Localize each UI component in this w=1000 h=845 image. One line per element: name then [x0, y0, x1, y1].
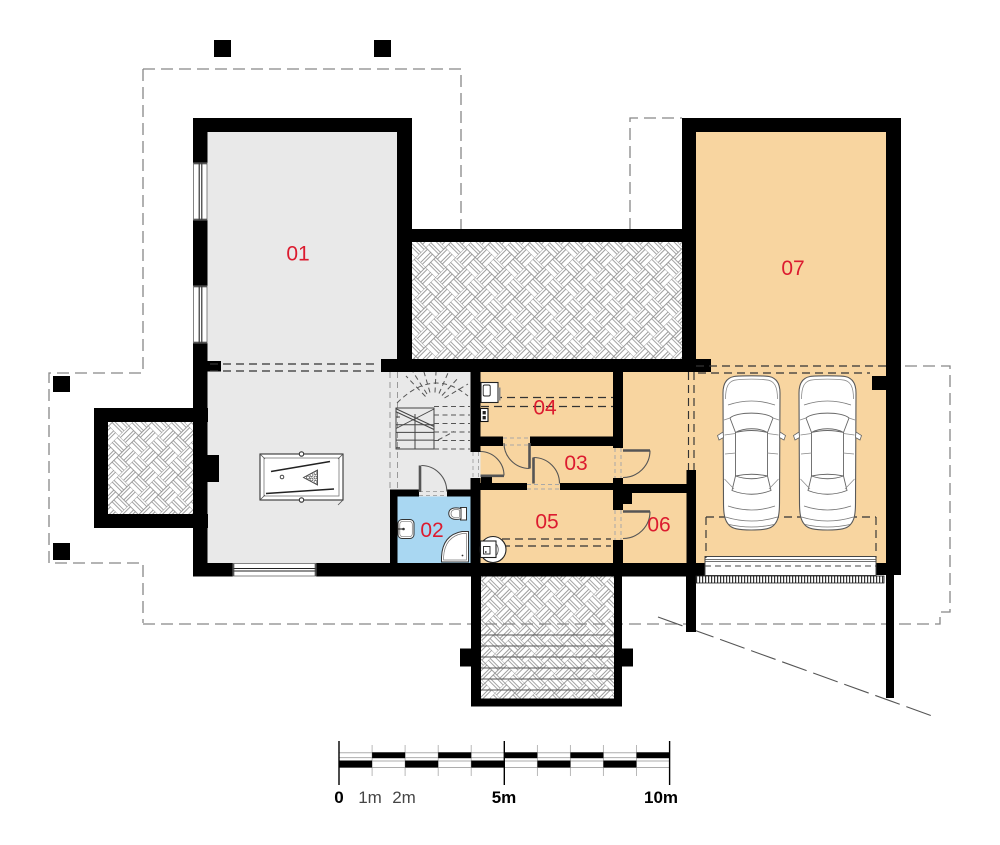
svg-text:5m: 5m [492, 788, 517, 807]
svg-text:0: 0 [334, 788, 343, 807]
svg-text:1m: 1m [358, 788, 382, 807]
svg-text:04: 04 [533, 397, 557, 420]
svg-text:01: 01 [286, 243, 309, 266]
svg-text:10m: 10m [644, 788, 678, 807]
svg-text:05: 05 [535, 511, 558, 534]
svg-text:2m: 2m [392, 788, 416, 807]
svg-text:06: 06 [647, 514, 670, 537]
svg-text:03: 03 [564, 452, 587, 475]
svg-text:07: 07 [781, 257, 804, 280]
svg-text:02: 02 [420, 519, 443, 542]
